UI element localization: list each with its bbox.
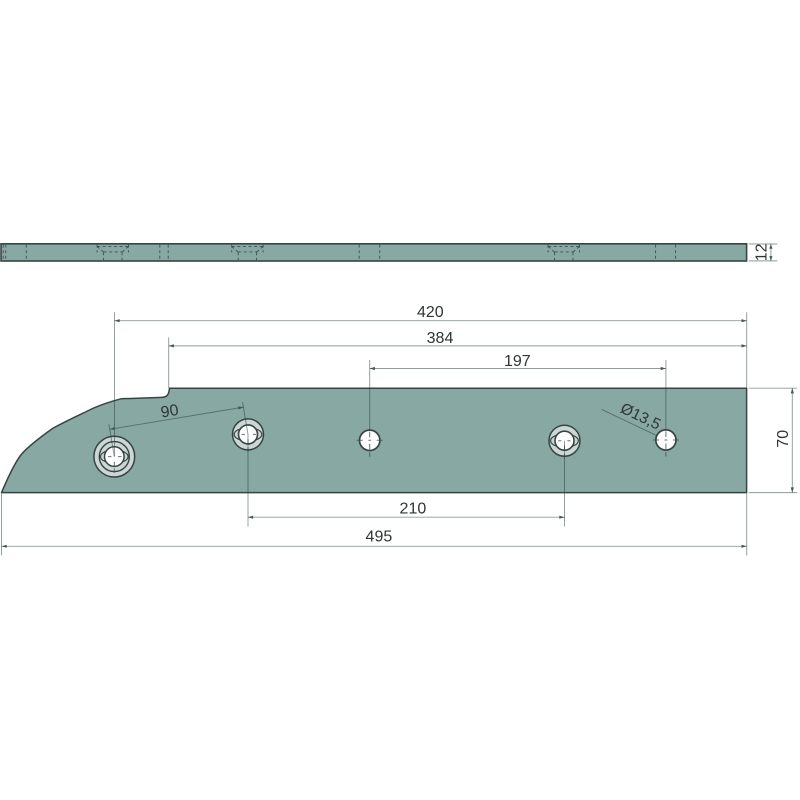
svg-text:70: 70 [775, 430, 792, 448]
svg-text:12: 12 [754, 243, 771, 261]
svg-text:420: 420 [417, 304, 444, 321]
svg-text:90: 90 [160, 402, 180, 422]
svg-text:210: 210 [400, 501, 427, 518]
svg-text:495: 495 [366, 528, 393, 545]
svg-text:384: 384 [427, 330, 454, 347]
svg-text:197: 197 [504, 353, 531, 370]
